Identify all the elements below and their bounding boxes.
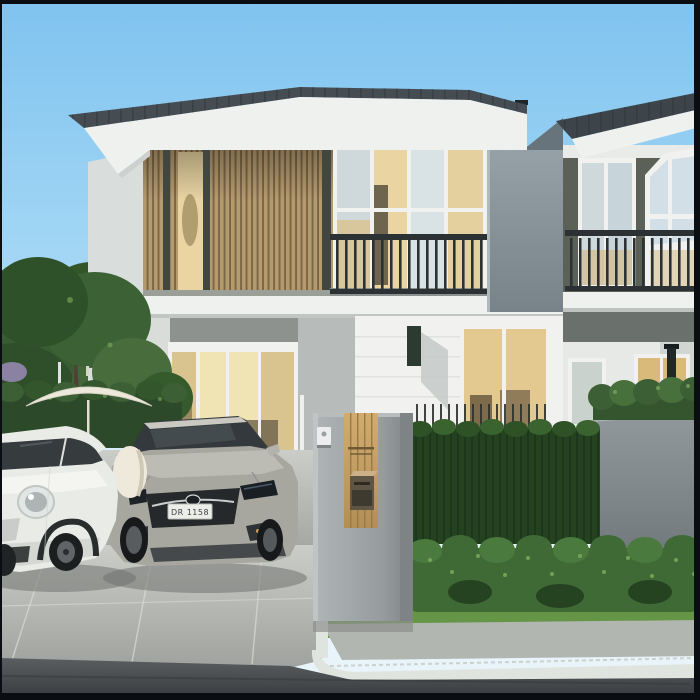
leaf-glint <box>158 397 162 401</box>
hedge-texture <box>410 428 600 544</box>
hedge-bump <box>576 420 600 436</box>
bay-transom <box>650 214 697 219</box>
garden-ornament <box>113 446 147 498</box>
hedge-bump <box>528 419 552 435</box>
louver-post <box>203 146 210 300</box>
shrub-bump <box>516 535 552 561</box>
shrub-bump <box>553 537 589 563</box>
headlight-inner <box>25 492 47 512</box>
wheel-rim <box>263 528 277 552</box>
leaf-glint <box>686 384 690 388</box>
shrub-bump <box>408 539 442 563</box>
brick-line <box>355 376 467 378</box>
doorbell-button <box>322 432 327 437</box>
wheel-hub <box>63 549 69 555</box>
umbrella-finial <box>86 366 89 376</box>
shrub-shade <box>448 580 492 604</box>
party-wall-face <box>487 123 563 312</box>
photo-viewport: DR 1158 <box>0 0 700 700</box>
gable-shadow <box>523 118 563 150</box>
panel-slat-line <box>364 413 365 528</box>
wall-edge-highlight <box>487 123 490 312</box>
louver-facade <box>143 146 333 300</box>
wall-lamp <box>407 326 421 366</box>
slab-shadow-line <box>563 308 700 312</box>
frame-border-left <box>0 0 2 700</box>
gate-pillar <box>313 413 413 632</box>
mailbox-top <box>350 471 378 476</box>
hedge-bump <box>480 419 504 435</box>
railing-top <box>330 234 490 240</box>
panel-slat-line <box>357 413 358 528</box>
shrub-bump <box>479 537 515 563</box>
license-plate: DR 1158 <box>168 504 212 519</box>
door-frame <box>294 342 298 468</box>
address-panel <box>344 413 378 528</box>
leaf-glint <box>656 386 660 390</box>
transom <box>333 208 488 212</box>
wood-panel <box>344 413 378 528</box>
hedge-bump <box>161 383 187 403</box>
mailbox-slot <box>354 482 370 485</box>
eave-shadow <box>143 148 333 300</box>
hedge-bump <box>504 421 528 437</box>
shrub-shade <box>628 580 672 604</box>
floor-slab <box>563 292 700 310</box>
mailbox <box>350 471 378 510</box>
scene-svg: DR 1158 <box>0 0 700 700</box>
balusters <box>330 240 490 293</box>
hedge-bump <box>552 421 576 437</box>
address-text-line <box>348 447 374 450</box>
balcony-railing-right <box>565 230 700 291</box>
louver-post <box>163 146 170 300</box>
panel-slat-line <box>350 413 351 528</box>
license-plate-text: DR 1158 <box>171 508 209 517</box>
ground-recess-shadow <box>563 312 700 342</box>
center-hedge <box>408 419 600 544</box>
railing-bottom <box>330 289 490 294</box>
panel-slat-line <box>371 413 372 528</box>
balusters <box>565 238 700 290</box>
doorbell-intercom <box>317 427 331 448</box>
louver-post <box>322 146 331 300</box>
leaf-glint <box>613 390 617 394</box>
shrub-bump <box>442 535 478 561</box>
frame-border-top <box>0 0 700 4</box>
hedge-bump <box>432 419 456 435</box>
frame-border-right <box>694 0 700 700</box>
brick-line <box>355 396 467 398</box>
door-transom <box>168 342 298 352</box>
headlight-glint <box>28 494 34 500</box>
mailbox-door <box>352 490 372 506</box>
railing-top <box>565 230 700 236</box>
wheel-rim <box>126 526 142 554</box>
pillar-edge-shade <box>400 413 413 621</box>
balcony-railing-left <box>330 234 490 296</box>
railing-bottom <box>565 286 700 291</box>
front-shrubs <box>408 535 700 612</box>
doorbell-shadow <box>317 445 331 448</box>
hedge-bump <box>136 380 164 400</box>
shrub-bump <box>590 535 626 561</box>
shrub-bump <box>627 537 663 563</box>
shrub-shade <box>536 584 584 608</box>
frame-border-bottom <box>0 693 700 700</box>
hedge-bump <box>456 421 480 437</box>
leaf-glint <box>108 343 113 348</box>
address-text-line <box>350 453 372 455</box>
leaf-glint <box>67 297 73 303</box>
